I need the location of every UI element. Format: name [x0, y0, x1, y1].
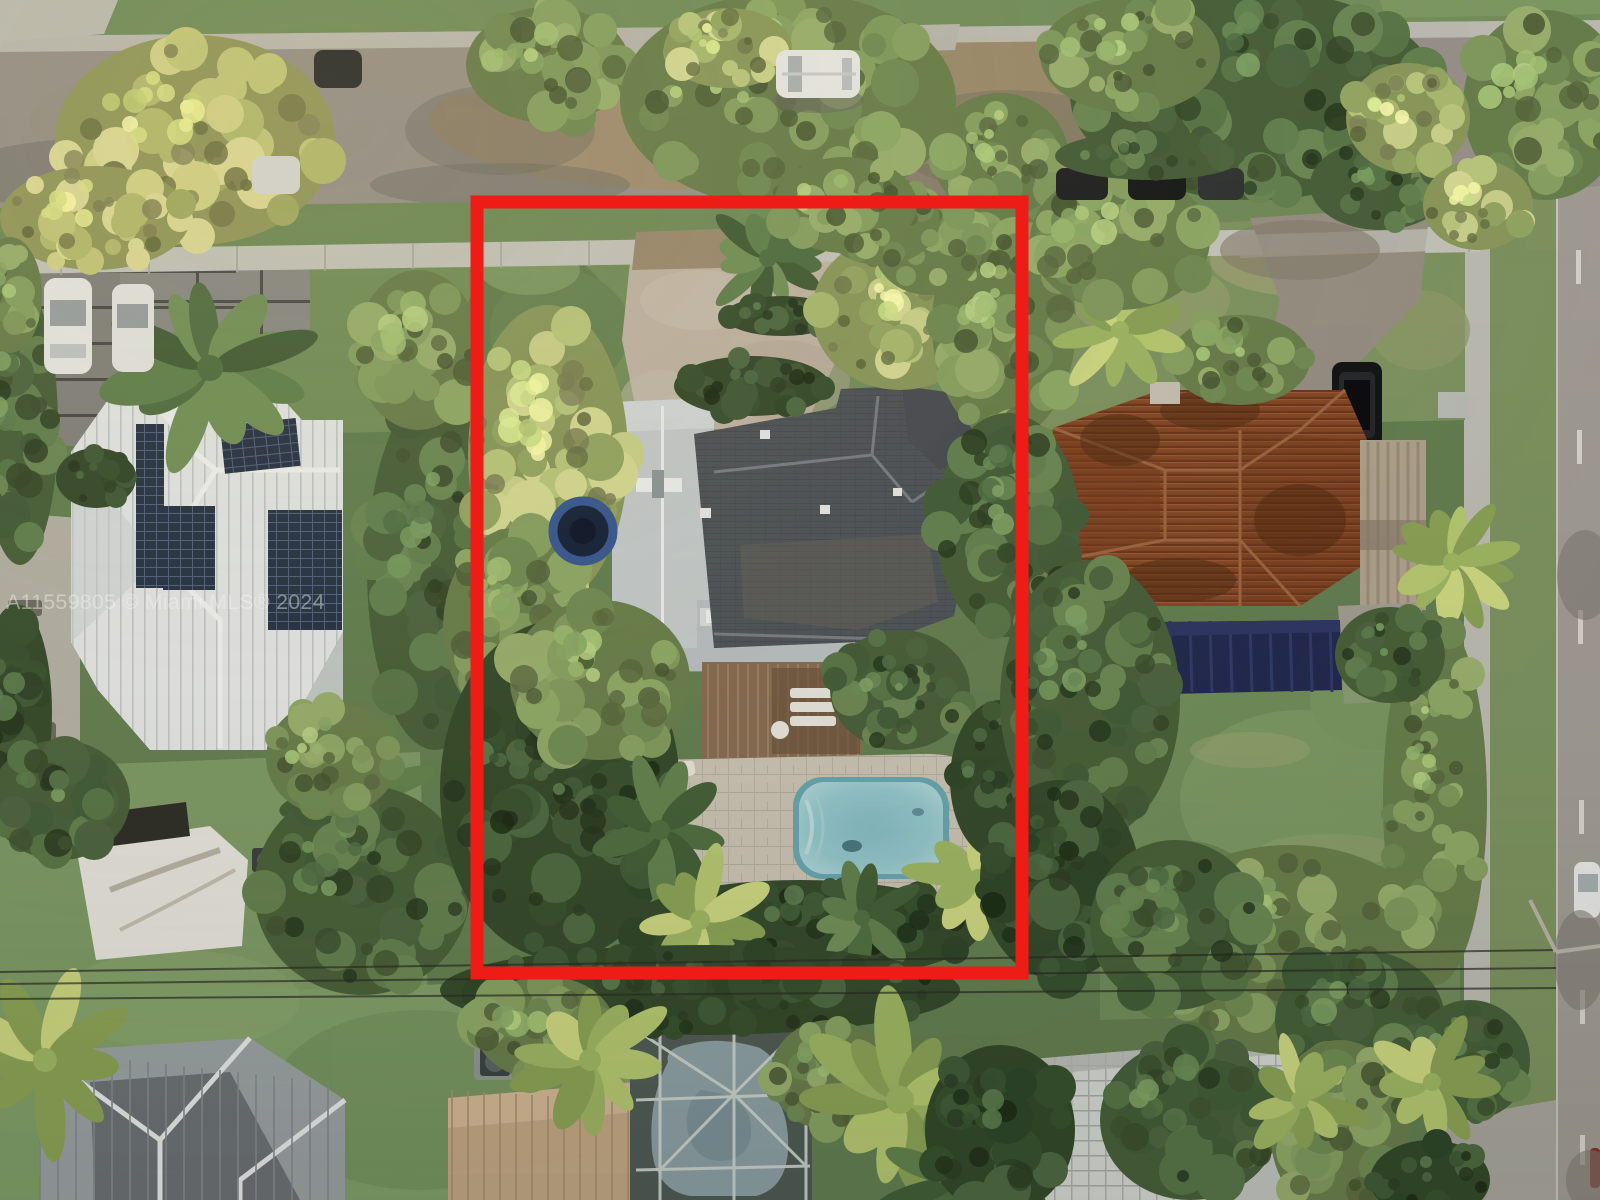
- svg-text:A11559805 © Miami MLS® 2024: A11559805 © Miami MLS® 2024: [6, 590, 325, 614]
